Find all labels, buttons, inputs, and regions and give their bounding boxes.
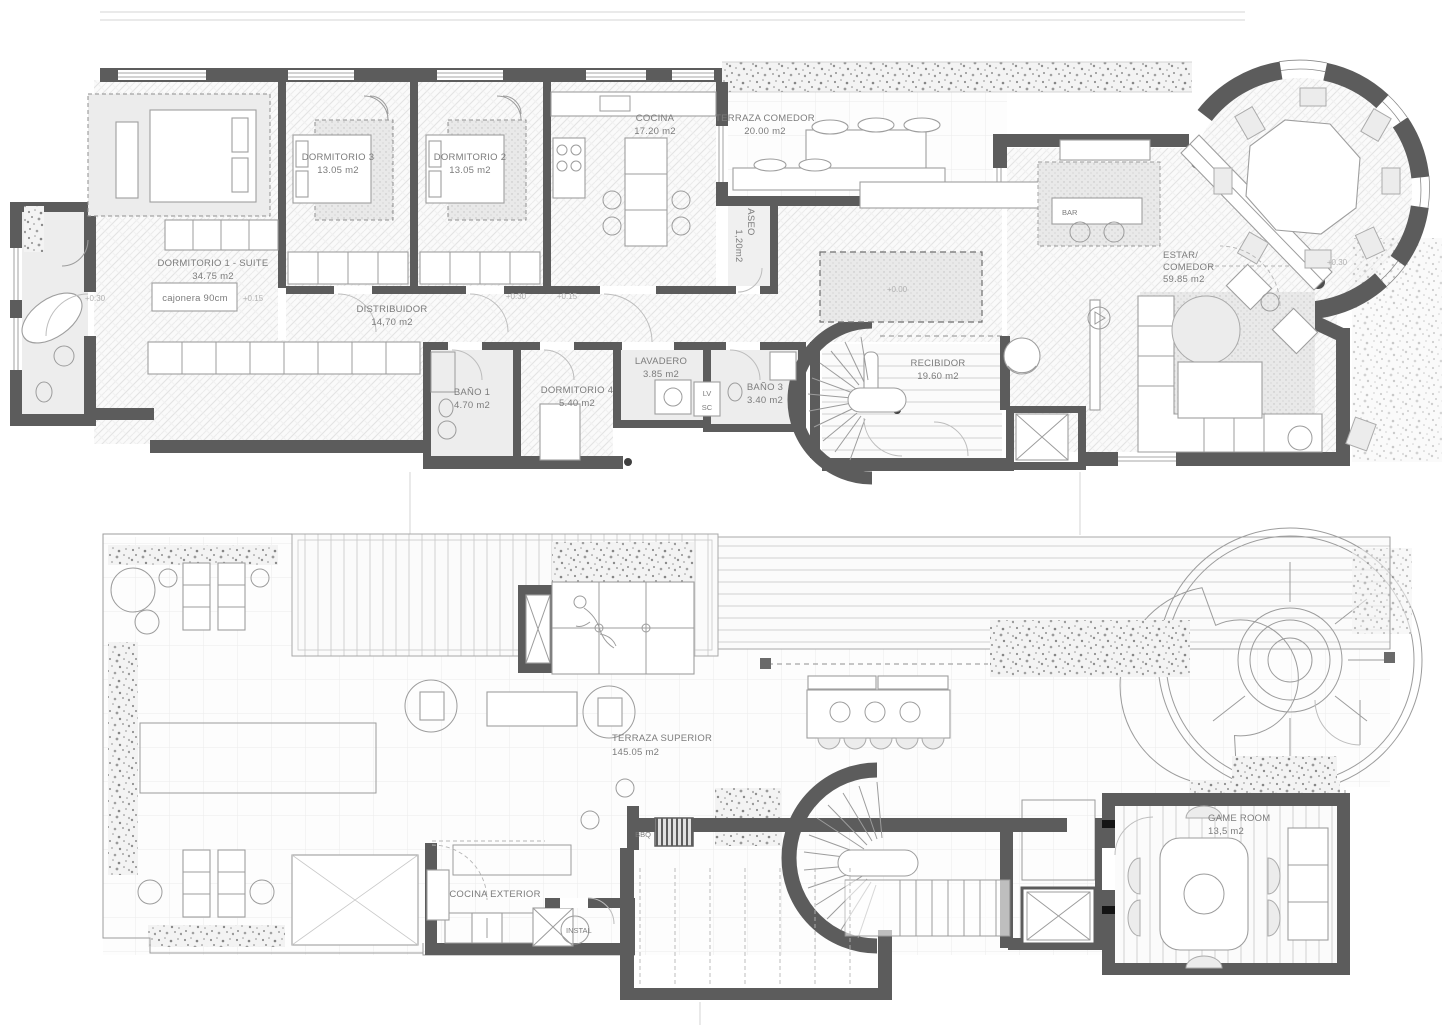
dorm3-area: 13.05 m2: [317, 165, 359, 176]
sc-label: SC: [702, 403, 713, 412]
dorm2-area: 13.05 m2: [449, 165, 491, 176]
bano3-area: 3.40 m2: [747, 395, 783, 406]
lower-plan: TERRAZA SUPERIOR 145.05 m2 GAME ROOM 13,…: [103, 528, 1422, 1000]
level-patio: +0.00: [887, 285, 908, 294]
coffee-table: [1178, 362, 1262, 418]
terrace-dining-table: [807, 690, 950, 738]
level-hall-b: +0.15: [557, 292, 578, 301]
washer: [655, 380, 691, 414]
lounger: [183, 563, 210, 630]
estar-name-2: COMEDOR: [1163, 262, 1214, 273]
aseo-area: 1,20m2: [733, 229, 744, 262]
ottoman: [1172, 296, 1240, 364]
elevator-upper: [1016, 414, 1068, 460]
kitchen-island: [625, 138, 667, 246]
instal-name: INSTAL: [566, 926, 592, 935]
dorm4-name: DORMITORIO 4: [541, 385, 614, 396]
cocina-area: 17.20 m2: [634, 126, 676, 137]
planter-bottom-left: [148, 925, 285, 947]
lavadero-area: 3.85 m2: [643, 369, 679, 380]
game-room-area: 13,5 m2: [1208, 826, 1244, 837]
terrace-coffee-table: [487, 692, 577, 726]
dorm4-bed: [540, 404, 580, 460]
bano1-name: BAÑO 1: [454, 387, 490, 398]
recibidor-name: RECIBIDOR: [910, 358, 965, 369]
lounger: [218, 563, 245, 630]
dorm3-name: DORMITORIO 3: [302, 152, 375, 163]
level-bath: +0.30: [85, 294, 106, 303]
planter-gameroom: [1190, 780, 1340, 794]
planter-left-column: [108, 642, 138, 875]
bano1-area: 4.70 m2: [454, 400, 490, 411]
bbq-name: BBQ: [635, 830, 651, 839]
terraza-superior-name: TERRAZA SUPERIOR: [612, 733, 712, 744]
suite-bench: [116, 122, 138, 198]
terraza-area: 20.00 m2: [744, 126, 786, 137]
estar-name-1: ESTAR/: [1163, 250, 1198, 261]
dorm4-area: 5.40 m2: [559, 398, 595, 409]
estar-area: 59.85 m2: [1163, 274, 1205, 285]
gameroom-bench: [1288, 828, 1328, 940]
bar-label: BAR: [1062, 208, 1078, 217]
bath-planter: [24, 206, 44, 252]
cocina-name: COCINA: [636, 113, 675, 124]
elevator-lower: [1022, 888, 1095, 944]
lounger: [218, 850, 245, 917]
lavadero-name: LAVADERO: [635, 356, 687, 367]
dorm2-name: DORMITORIO 2: [434, 152, 507, 163]
cocina-exterior-name: COCINA EXTERIOR: [449, 889, 540, 900]
level-turret: +0.30: [1327, 258, 1348, 267]
terraza-superior-area: 145.05 m2: [612, 747, 659, 758]
terraza-name: TERRAZA COMEDOR: [715, 113, 815, 124]
level-hall-a: +0.30: [506, 292, 527, 301]
swivel-chair: [1004, 338, 1040, 374]
planter-mid: [990, 620, 1190, 677]
bbq-grill: [655, 818, 693, 846]
dorm1-name: DORMITORIO 1 - SUITE: [158, 258, 269, 269]
distribuidor-name: DISTRIBUIDOR: [356, 304, 427, 315]
game-room-name: GAME ROOM: [1208, 813, 1270, 824]
floorplan-sheet: DORMITORIO 1 - SUITE 34.75 m2 cajonera 9…: [0, 0, 1452, 1026]
planter-sofa: [552, 542, 694, 582]
floorplan-drawing: DORMITORIO 1 - SUITE 34.75 m2 cajonera 9…: [0, 0, 1452, 1026]
distribuidor-area: 14,70 m2: [371, 317, 413, 328]
planter-top-right: [1352, 548, 1412, 634]
kitchen-counter: [551, 92, 716, 116]
game-table: [1160, 838, 1248, 950]
lv-label: LV: [703, 389, 712, 398]
top-hedge: [722, 62, 1192, 92]
level-suite: +0.15: [243, 294, 264, 303]
recibidor-area: 19.60 m2: [917, 371, 959, 382]
dorm1-area: 34.75 m2: [192, 271, 234, 282]
planter-bbq: [715, 788, 781, 846]
aseo-name: ASEO: [745, 208, 756, 235]
lounger: [183, 850, 210, 917]
bano3-name: BAÑO 3: [747, 382, 783, 393]
planter-top-left: [108, 545, 278, 565]
cajonera-label: cajonera 90cm: [162, 293, 228, 304]
upper-plan: DORMITORIO 1 - SUITE 34.75 m2 cajonera 9…: [10, 60, 1442, 478]
